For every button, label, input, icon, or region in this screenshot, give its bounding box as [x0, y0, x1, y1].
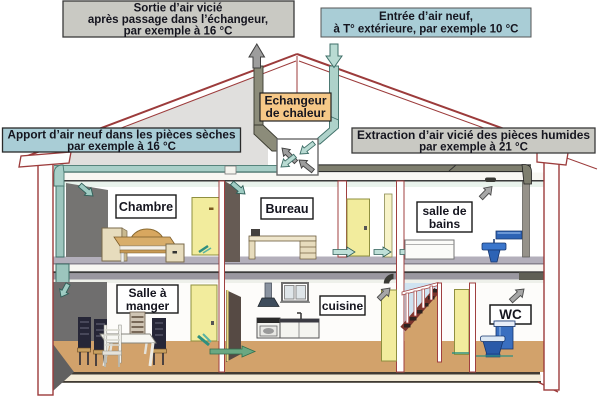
svg-text:Chambre: Chambre: [119, 200, 173, 214]
svg-text:bains: bains: [429, 217, 461, 231]
svg-text:Salle à: Salle à: [128, 286, 166, 300]
svg-text:manger: manger: [126, 299, 170, 313]
svg-text:par exemple à 16 °C: par exemple à 16 °C: [67, 141, 176, 153]
svg-text:par exemple à 21 °C: par exemple à 21 °C: [419, 142, 528, 154]
svg-text:Apport d’air neuf dans les piè: Apport d’air neuf dans les pièces sèches: [8, 130, 236, 142]
svg-text:Entrée d’air neuf,: Entrée d’air neuf,: [379, 11, 473, 23]
svg-text:Sortie d’air vicié: Sortie d’air vicié: [134, 3, 223, 15]
svg-text:après passage dans l’échangeur: après passage dans l’échangeur,: [88, 14, 268, 26]
svg-text:de chaleur: de chaleur: [265, 106, 325, 120]
svg-text:WC: WC: [499, 307, 522, 322]
svg-text:Extraction d’air vicié des piè: Extraction d’air vicié des pièces humide…: [357, 130, 590, 142]
svg-text:cuisine: cuisine: [322, 299, 364, 313]
svg-text:par exemple à 16 °C: par exemple à 16 °C: [124, 26, 233, 38]
svg-text:salle de: salle de: [422, 204, 466, 218]
svg-text:à T° extérieure, par exemple 1: à T° extérieure, par exemple 10 °C: [334, 24, 519, 36]
svg-text:Bureau: Bureau: [265, 202, 308, 216]
